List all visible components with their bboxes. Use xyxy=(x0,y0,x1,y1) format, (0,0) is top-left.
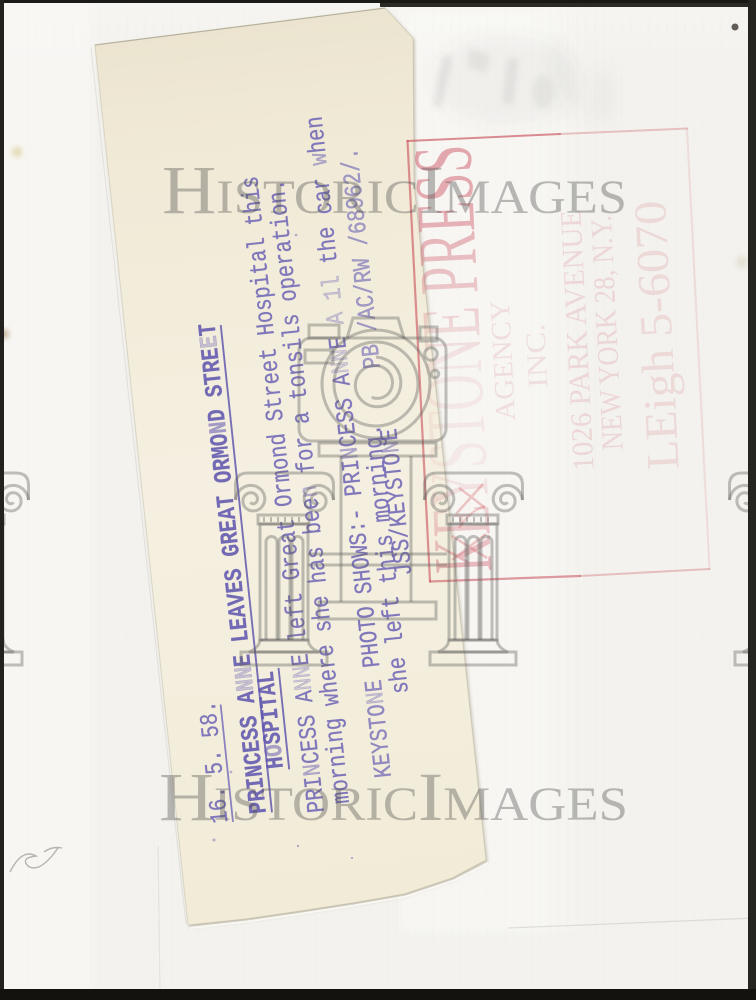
svg-text:HistoricImages: HistoricImages xyxy=(159,759,628,835)
svg-text:HistoricImages: HistoricImages xyxy=(162,152,627,228)
